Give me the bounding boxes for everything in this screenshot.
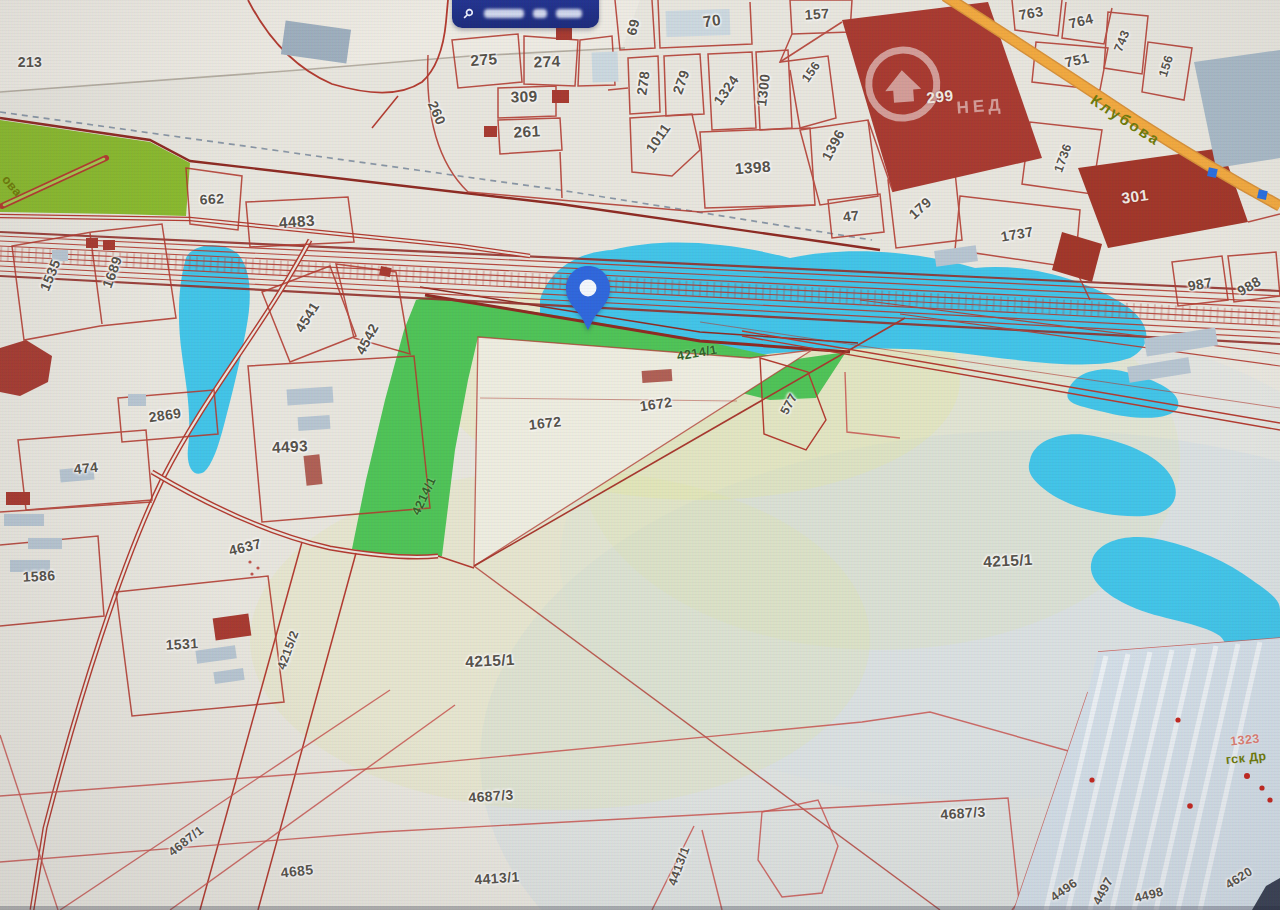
search-icon: ⌕ <box>464 1 475 23</box>
parcel-label-662: 662 <box>199 190 225 208</box>
parcel-label-1672-a: 1672 <box>528 413 562 432</box>
parcel-label-47: 47 <box>842 207 860 225</box>
top-toolbar-button[interactable]: ⌕ <box>452 0 599 28</box>
button-label-blur <box>484 9 524 18</box>
parcel-label-4493: 4493 <box>272 437 309 457</box>
road-marker-dot <box>1257 189 1268 200</box>
parcel-label-1531: 1531 <box>165 635 199 653</box>
cadastral-map[interactable]: НЕД ⌕ 213 275 274 309 261 260 69 70 278 … <box>0 0 1280 910</box>
parcel-label-4483: 4483 <box>278 212 315 232</box>
parcel-label-474: 474 <box>73 459 99 477</box>
parcel-label-309: 309 <box>510 88 538 107</box>
parcel-label-4687-3-a: 4687/3 <box>468 786 514 805</box>
parcel-label-261: 261 <box>513 122 541 141</box>
parcel-label-274: 274 <box>533 53 561 72</box>
parcel-label-4215-1-b: 4215/1 <box>465 651 516 672</box>
parcel-label-1586: 1586 <box>22 567 56 585</box>
parcel-label-278: 278 <box>633 70 652 97</box>
map-canvas[interactable] <box>0 0 1280 910</box>
parcel-label-4687-3-b: 4687/3 <box>940 803 986 822</box>
parcel-label-4215-1-a: 4215/1 <box>983 551 1034 572</box>
parcel-label-213: 213 <box>18 54 43 70</box>
map-pin[interactable] <box>564 264 612 332</box>
parcel-label-275: 275 <box>470 50 498 70</box>
parcel-label-299: 299 <box>926 87 955 108</box>
parcel-label-157: 157 <box>804 5 830 23</box>
parcel-label-301: 301 <box>1120 186 1149 208</box>
parcel-label-70: 70 <box>702 11 722 31</box>
parcel-label-1398: 1398 <box>734 158 771 178</box>
road-marker-dot <box>1207 167 1218 178</box>
parcel-label-4413-1-a: 4413/1 <box>474 868 520 887</box>
parcel-label-4685: 4685 <box>280 861 314 880</box>
